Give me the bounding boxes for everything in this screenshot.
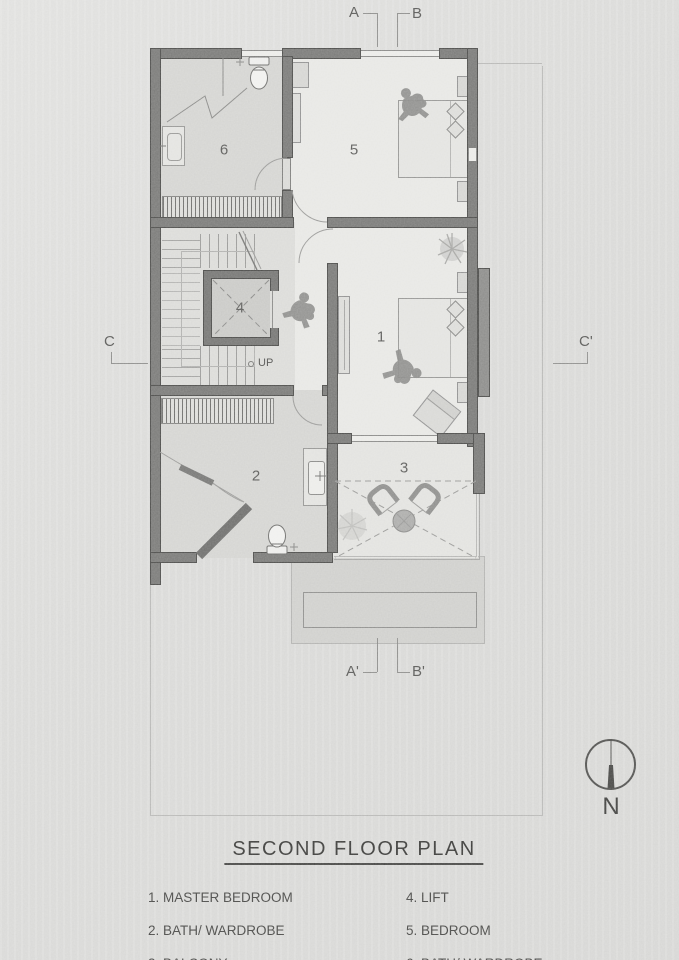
room-label-5: 5: [350, 142, 358, 159]
section-marker-b-prime: B': [412, 663, 425, 680]
room-2-wardrobe-hatch: [161, 398, 274, 424]
room-label-2: 2: [252, 468, 260, 485]
legend-item: 3. BALCONY: [148, 956, 293, 960]
wall-segment: [150, 48, 161, 585]
section-line: [111, 352, 112, 363]
section-line: [377, 13, 378, 47]
section-line: [397, 672, 410, 673]
wall-fin: [478, 268, 490, 397]
sink-counter-room2: [303, 448, 327, 506]
window: [468, 148, 477, 161]
section-line: [363, 672, 377, 673]
room-label-4: 4: [236, 300, 244, 317]
section-line: [397, 13, 398, 47]
legend-item: 1. MASTER BEDROOM: [148, 890, 293, 907]
wall-segment: [282, 56, 293, 158]
legend-left: 1. MASTER BEDROOM 2. BATH/ WARDROBE 3. B…: [148, 873, 293, 960]
window: [361, 50, 439, 57]
wall-segment: [150, 217, 294, 228]
wall-segment: [473, 433, 485, 494]
wall-segment: [282, 48, 361, 59]
floor-plan-sheet: A B A' B' C C' 1 2 3 4 5 6 UP N SECOND F…: [0, 0, 679, 960]
legend-item: 6. BATH/ WARDROBE: [406, 956, 543, 960]
sink-icon-room6: [162, 126, 185, 166]
north-label: N: [602, 793, 619, 821]
section-marker-c: C: [104, 333, 115, 350]
sink-basin: [308, 461, 325, 495]
pergola-louvers: [303, 592, 477, 628]
section-line: [111, 363, 148, 364]
site-boundary-line-bottom: [150, 815, 543, 816]
wall-segment: [150, 385, 294, 396]
wall-segment: [467, 48, 478, 447]
room-label-3: 3: [400, 460, 408, 477]
wall-segment: [150, 48, 242, 59]
door-leaf: [282, 158, 291, 190]
wall-segment: [327, 217, 478, 228]
section-line: [377, 638, 378, 672]
site-boundary-line-right: [542, 66, 543, 815]
section-line: [363, 13, 377, 14]
lift-door-line: [272, 291, 273, 328]
legend-item: 2. BATH/ WARDROBE: [148, 923, 293, 940]
section-marker-a: A: [349, 4, 359, 21]
section-marker-a-prime: A': [346, 663, 359, 680]
sink-basin: [167, 133, 182, 161]
north-compass: [585, 739, 636, 790]
stair-up-label: UP: [258, 357, 273, 369]
room-label-1: 1: [377, 329, 385, 346]
section-line: [587, 352, 588, 363]
section-line: [553, 363, 588, 364]
title-wrap: SECOND FLOOR PLAN: [224, 838, 483, 861]
legend-item: 4. LIFT: [406, 890, 543, 907]
wall-segment: [327, 263, 338, 553]
section-marker-b: B: [412, 5, 422, 22]
window: [242, 50, 282, 57]
site-boundary-line-top: [478, 63, 542, 64]
section-line: [397, 13, 410, 14]
wardrobe-line: [344, 300, 345, 370]
balcony-slider-window: [352, 435, 437, 442]
wall-segment: [150, 552, 197, 563]
legend-item: 5. BEDROOM: [406, 923, 543, 940]
page-title: SECOND FLOOR PLAN: [224, 838, 483, 865]
legend-right: 4. LIFT 5. BEDROOM 6. BATH/ WARDROBE: [406, 873, 543, 960]
room-label-6: 6: [220, 142, 228, 159]
wall-segment: [327, 433, 352, 444]
section-marker-c-prime: C': [579, 333, 593, 350]
site-boundary-line-left: [150, 585, 151, 815]
wall-segment: [253, 552, 333, 563]
section-line: [397, 638, 398, 672]
